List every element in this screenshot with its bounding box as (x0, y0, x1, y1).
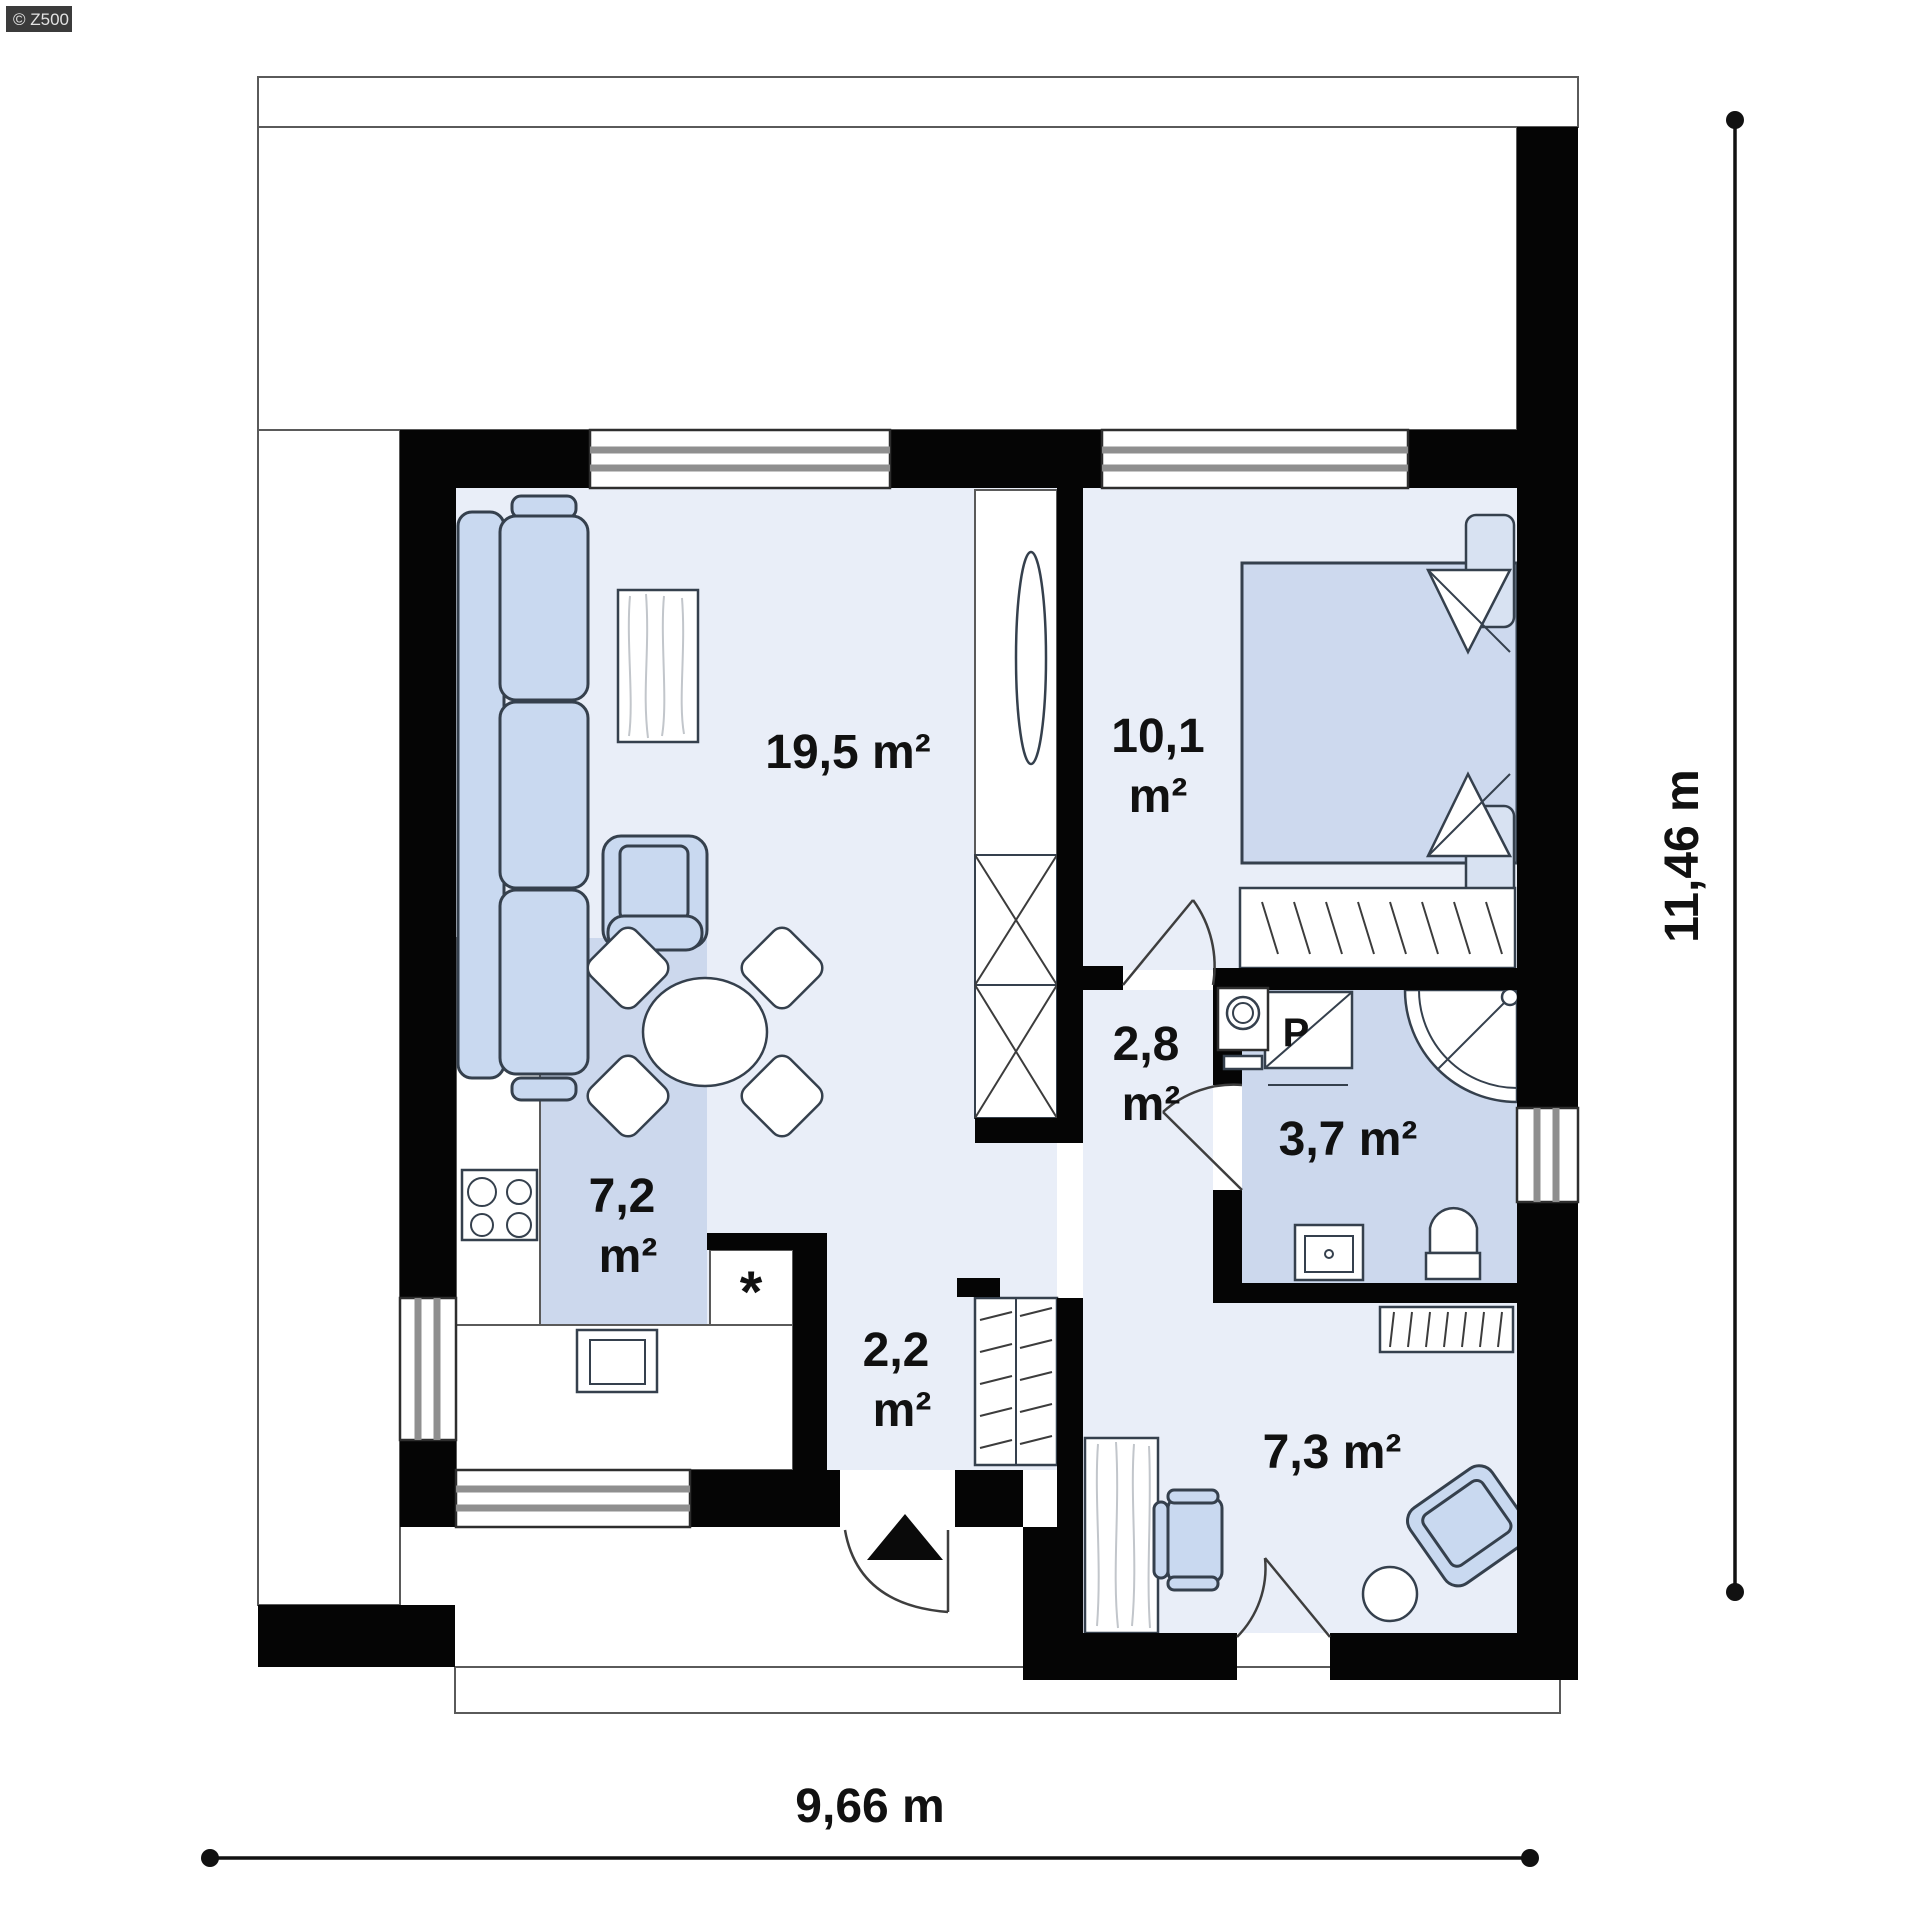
room-label-hall-line1: 2,8 (1113, 1018, 1180, 1071)
wall-bathroom-top (1213, 968, 1517, 990)
wall-entry-stub (957, 1278, 1000, 1297)
wardrobe-column (975, 490, 1057, 1118)
desk-icon (1085, 1438, 1158, 1633)
room-label-office: 7,3 m² (1263, 1426, 1402, 1479)
wall-bathroom-left-lower (1213, 1190, 1242, 1283)
stove-icon (462, 1170, 537, 1240)
room-label-living: 19,5 m² (765, 726, 930, 779)
window-bathroom (1517, 1108, 1578, 1202)
room-label-entry-line1: 2,2 (863, 1324, 930, 1377)
eaves-strip (258, 77, 1578, 127)
room-label-hall-line2: m² (1122, 1078, 1181, 1131)
room-label-kitchen-line2: m² (599, 1230, 658, 1283)
room-label-entry-line2: m² (873, 1384, 932, 1437)
floor-plan-canvas: * (0, 0, 1920, 1920)
wall-bathroom-bottom (1213, 1283, 1517, 1303)
office-chair-icon (1154, 1490, 1222, 1590)
window-kitchen-bottom (456, 1470, 690, 1527)
window-kitchen-left (400, 1298, 456, 1440)
terrace-left-strip (258, 430, 400, 1605)
room-label-bedroom-line2: m² (1129, 770, 1188, 823)
window-living (590, 430, 890, 488)
floor-plan-page: * (0, 0, 1920, 1920)
entry-arrow-icon (867, 1514, 943, 1560)
wall-column-cap (975, 1118, 1083, 1143)
wall-corridor-left (1057, 1298, 1083, 1633)
wardrobe-column-body (975, 490, 1057, 1118)
washing-machine-label: P (1283, 1011, 1310, 1055)
hall-wardrobe-icon (975, 1298, 1057, 1465)
wall-column (1057, 488, 1083, 1143)
sofa-icon (458, 496, 588, 1100)
wall-entry-right (955, 1470, 1023, 1527)
bed-icon (1242, 515, 1517, 918)
toilet-icon (1426, 1208, 1480, 1279)
wall-right-lower (1517, 1202, 1578, 1680)
wall-right-upper (1517, 127, 1578, 1108)
dimension-label-height: 11,46 m (1656, 769, 1709, 942)
coffee-table-icon (618, 590, 698, 742)
side-table-icon (1363, 1567, 1417, 1621)
dimension-label-width: 9,66 m (795, 1780, 944, 1833)
dimension-right: 11,46 m (1656, 111, 1744, 1601)
wall-bottom-office-left (1023, 1633, 1237, 1680)
dresser-icon (1240, 888, 1515, 968)
washbasin-icon (1295, 1225, 1363, 1280)
wall-left (400, 488, 456, 1298)
wall-bedroom-door-stub (1083, 966, 1123, 990)
room-label-bedroom-line1: 10,1 (1111, 710, 1204, 763)
wall-bottom-kitchen (690, 1470, 840, 1527)
wall-kitchen-entry-side (793, 1250, 827, 1470)
appliance-marker: * (740, 1260, 763, 1325)
watermark-badge: © Z500 (6, 6, 72, 32)
terrace-top (258, 127, 1517, 430)
room-label-bathroom: 3,7 m² (1279, 1113, 1418, 1166)
dimension-bottom: 9,66 m (201, 1780, 1539, 1867)
corner-sink-icon (1218, 988, 1268, 1069)
office-wardrobe-icon (1380, 1307, 1513, 1352)
terrace-corner-block (258, 1605, 455, 1667)
watermark-text: © Z500 (13, 10, 69, 29)
wall-left-corner (400, 1440, 456, 1527)
wall-kitchen-entry-top (707, 1233, 827, 1250)
appliance-niche: * (710, 1250, 793, 1325)
room-label-kitchen-line1: 7,2 (589, 1170, 656, 1223)
window-bedroom (1102, 430, 1408, 488)
mirror-door-icon (1016, 552, 1046, 764)
sink-icon (577, 1330, 657, 1392)
